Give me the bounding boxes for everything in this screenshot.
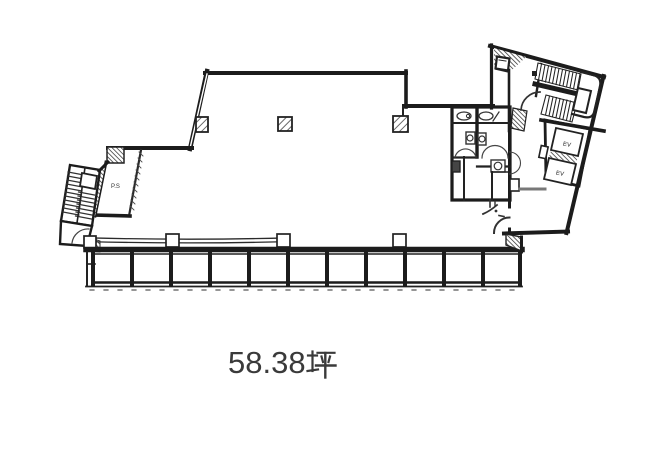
svg-text:58.38: 58.38: [228, 345, 306, 380]
svg-text:P.S: P.S: [111, 184, 120, 190]
